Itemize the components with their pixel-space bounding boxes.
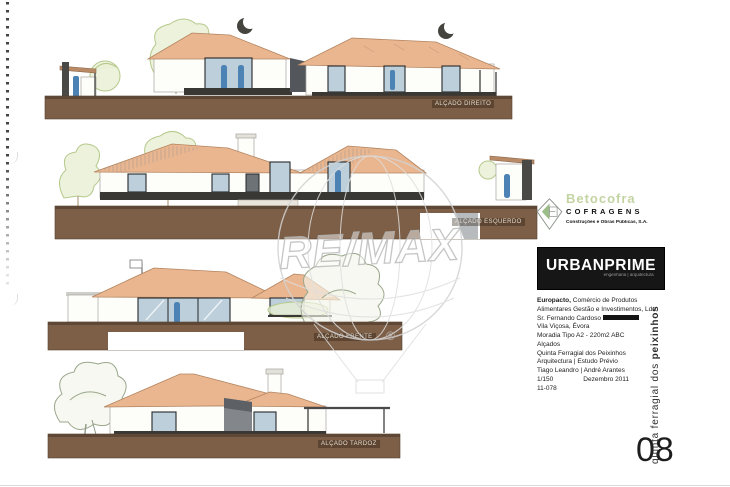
betocofra-logo-icon bbox=[536, 186, 563, 242]
elevation-right-label: ALÇADO DIREITO bbox=[432, 100, 494, 108]
backyard-structure bbox=[60, 62, 96, 98]
scale-date-row: 1/150 Dezembro 2011 bbox=[537, 376, 659, 385]
remax-text: RE/MAX bbox=[278, 218, 463, 279]
betocofra-logo: Betocofra COFRAGENS Construções e Obras … bbox=[536, 186, 668, 244]
vertical-project-title: quinta ferragial dos peixinhos bbox=[650, 292, 666, 464]
moon-icon bbox=[438, 20, 458, 39]
client-contact: Sr. Fernando Cardoso bbox=[537, 315, 659, 324]
window bbox=[152, 412, 176, 433]
person-figure bbox=[73, 76, 79, 98]
betocofra-name: Betocofra bbox=[566, 192, 668, 205]
project-title: Moradia Tipo A2 - 220m2 ABC bbox=[537, 332, 659, 341]
basement-cut bbox=[108, 332, 244, 350]
moon-icon bbox=[237, 15, 257, 34]
project-phase: Arquitectura | Estudo Prévio bbox=[537, 358, 659, 367]
glass-door bbox=[205, 58, 252, 91]
urbanprime-name: URBANPRIME bbox=[546, 258, 656, 274]
elevation-rear-label: ALÇADO TARDOZ bbox=[318, 440, 380, 448]
glass-doors bbox=[138, 298, 230, 324]
redaction-bar bbox=[603, 315, 639, 320]
scan-artifact bbox=[9, 152, 18, 164]
person-figure bbox=[174, 302, 180, 323]
person-figure bbox=[504, 174, 510, 198]
window bbox=[212, 174, 229, 192]
tree bbox=[59, 144, 100, 208]
window bbox=[128, 174, 146, 192]
house-right-block bbox=[298, 38, 500, 99]
drawing-sheet: ALÇADO DIREITO bbox=[0, 0, 730, 487]
person-figure bbox=[238, 65, 244, 90]
project-location: Vila Viçosa, Évora bbox=[537, 323, 659, 332]
drawing-reference: 11-078 bbox=[537, 385, 659, 394]
window bbox=[442, 66, 460, 92]
sheet-edge-line bbox=[0, 485, 730, 486]
registered-mark-icon: ® bbox=[386, 329, 395, 343]
scan-artifact bbox=[9, 294, 18, 306]
perforation-marks bbox=[6, 2, 9, 286]
betocofra-tagline: Construções e Obras Públicas, S.A. bbox=[566, 220, 648, 225]
project-authors: Tiago Leandro | André Arantes bbox=[537, 367, 659, 376]
urbanprime-tagline: engenharia | arquitectura bbox=[604, 273, 654, 278]
project-subtitle: Alçados bbox=[537, 341, 659, 350]
person-figure bbox=[221, 65, 227, 90]
drawing-date: Dezembro 2011 bbox=[583, 376, 629, 385]
window bbox=[254, 412, 276, 433]
drawing-scale: 1/150 bbox=[537, 376, 553, 385]
betocofra-division: COFRAGENS bbox=[566, 208, 668, 216]
title-block-info: Europacto, Comércio de Produtos Alimenta… bbox=[537, 297, 659, 393]
remax-watermark: RE/MAX ® bbox=[252, 152, 502, 397]
client-line: Europacto, Comércio de Produtos Alimenta… bbox=[537, 297, 659, 315]
project-site: Quinta Ferragial dos Peixinhos bbox=[537, 350, 659, 359]
urbanprime-logo: URBANPRIME engenharia | arquitectura bbox=[537, 247, 665, 290]
person-figure bbox=[390, 70, 395, 90]
window bbox=[328, 66, 345, 92]
